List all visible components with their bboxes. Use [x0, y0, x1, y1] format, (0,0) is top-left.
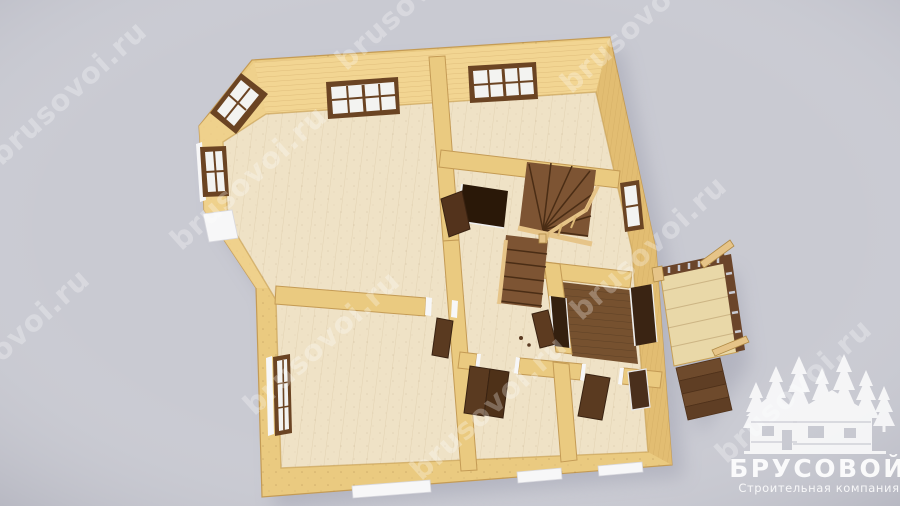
logo-title: БРУСОВОЙ [729, 454, 900, 483]
window-top-right-room [468, 62, 538, 103]
window-right-dark [628, 369, 650, 410]
logo-subtitle: Строительная компания [738, 481, 899, 495]
floor-plan-scene: brusovoi.ru brusovoi.ru brusovoi.ru brus… [0, 0, 900, 506]
porch-entry-door [630, 284, 657, 346]
porch-post [652, 266, 664, 282]
render-canvas: brusovoi.ru brusovoi.ru brusovoi.ru brus… [0, 0, 900, 506]
window-top-left-room [326, 77, 400, 119]
